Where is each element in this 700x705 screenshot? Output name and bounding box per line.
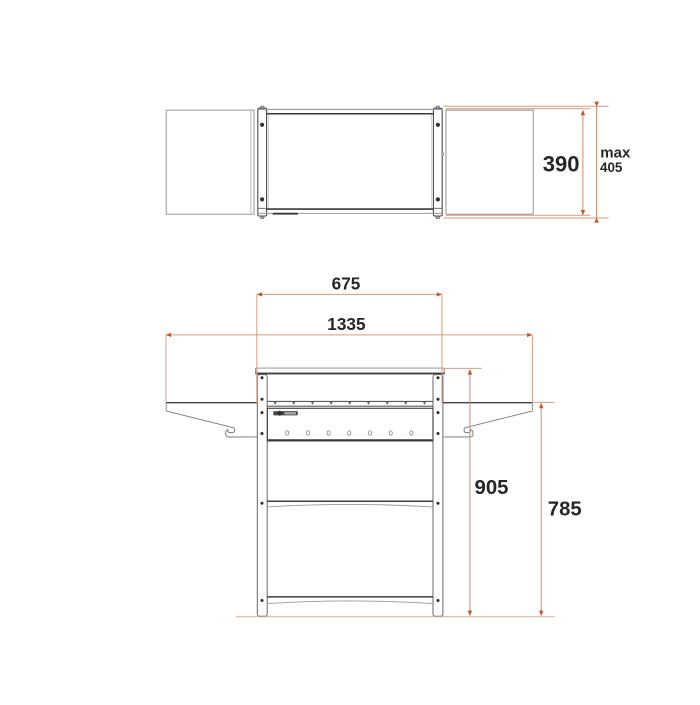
svg-text:405: 405 [600,160,623,175]
svg-text:max: max [600,145,631,162]
svg-text:905: 905 [475,477,509,499]
svg-text:1335: 1335 [327,314,366,334]
svg-text:675: 675 [332,274,361,294]
svg-text:785: 785 [548,499,582,521]
svg-text:390: 390 [543,151,580,176]
